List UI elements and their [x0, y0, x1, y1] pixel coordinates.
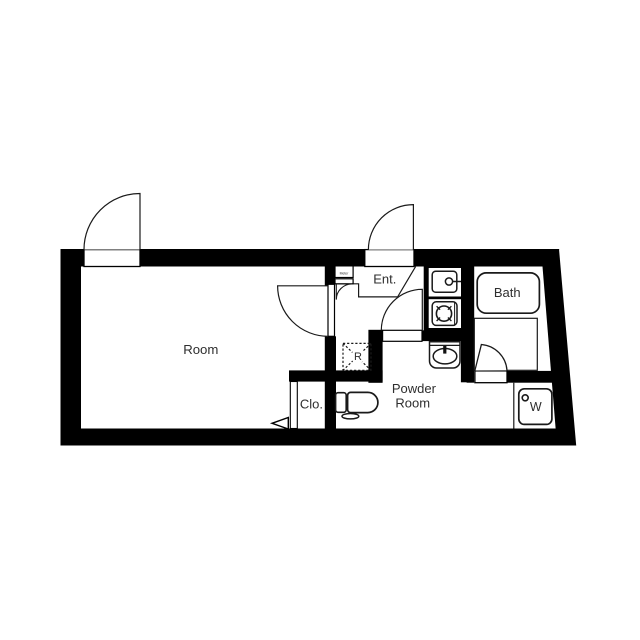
- svg-text:Room: Room: [183, 342, 218, 357]
- svg-text:Room: Room: [395, 395, 430, 410]
- svg-text:W: W: [530, 400, 542, 414]
- svg-text:Meter: Meter: [340, 271, 350, 275]
- svg-text:Ent.: Ent.: [373, 271, 396, 286]
- svg-text:Powder: Powder: [392, 381, 437, 396]
- svg-text:Bath: Bath: [494, 285, 521, 300]
- svg-text:R: R: [354, 351, 362, 363]
- svg-text:Clo.: Clo.: [300, 396, 323, 411]
